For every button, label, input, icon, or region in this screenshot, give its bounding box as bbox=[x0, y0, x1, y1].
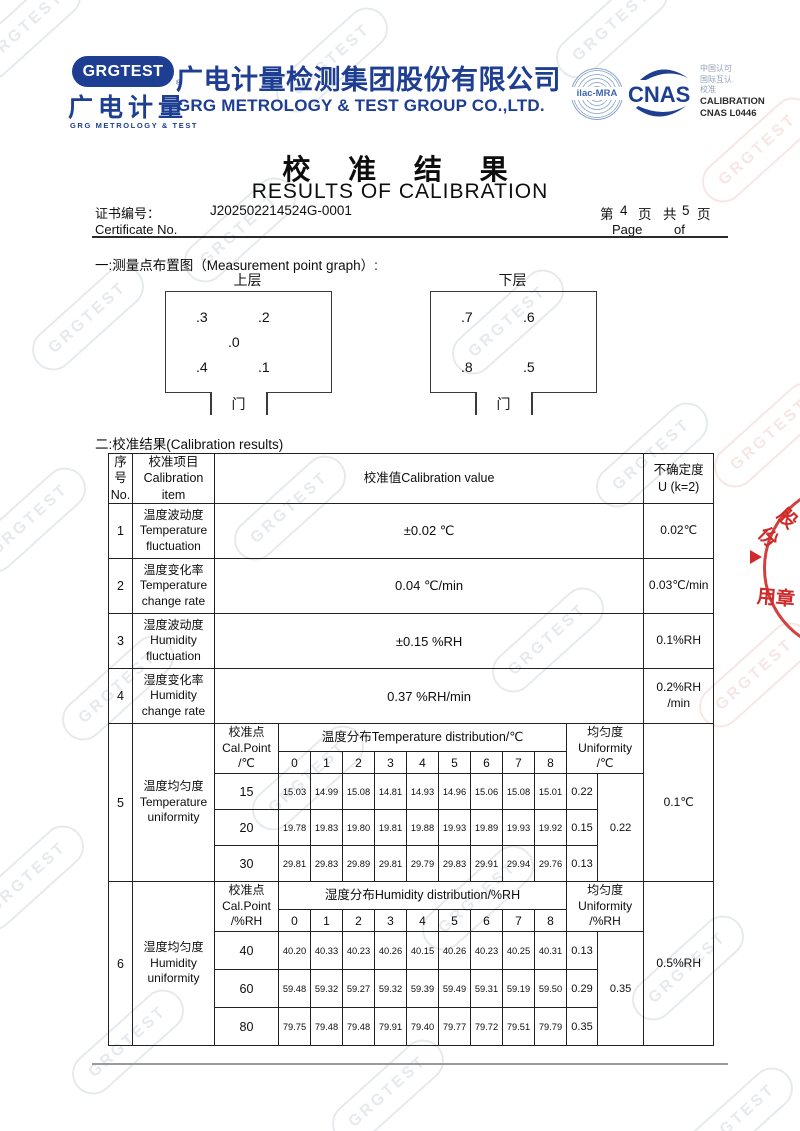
page-total: 5 bbox=[682, 203, 690, 218]
accred-line-cn: 中国认可 bbox=[700, 64, 765, 75]
cell-measurement: 29.83 bbox=[439, 846, 471, 882]
lower-layer-box: .7 .6 .8 .5 门 bbox=[430, 291, 597, 393]
col-header-no: 序 号 No. bbox=[109, 454, 133, 504]
cell-measurement: 19.89 bbox=[471, 810, 503, 846]
measurement-point: .6 bbox=[523, 309, 535, 325]
cell-item: 温度均匀度 Temperature uniformity bbox=[133, 724, 215, 882]
certificate-no-label-cn: 证书编号： bbox=[95, 203, 160, 222]
cell-measurement: 59.48 bbox=[279, 970, 311, 1008]
cell-distribution-label: 温度分布Temperature distribution/℃ bbox=[279, 724, 567, 752]
cell-calpoint-label: 校准点 Cal.Point /℃ bbox=[215, 724, 279, 774]
cell-value: 0.04 ℃/min bbox=[215, 559, 644, 614]
grgtest-watermark: GRGTEST bbox=[0, 459, 95, 581]
section2-heading: 二:校准结果(Calibration results) bbox=[95, 433, 283, 453]
cell-value: 0.37 %RH/min bbox=[215, 669, 644, 724]
cell-no: 4 bbox=[109, 669, 133, 724]
cell-measurement: 14.93 bbox=[407, 774, 439, 810]
cell-no: 3 bbox=[109, 614, 133, 669]
cell-measurement: 40.26 bbox=[439, 932, 471, 970]
cell-measurement: 40.15 bbox=[407, 932, 439, 970]
cell-uniformity: 0.13 bbox=[567, 846, 598, 882]
cell-measurement: 29.83 bbox=[311, 846, 343, 882]
cell-col-index: 5 bbox=[439, 752, 471, 774]
cell-measurement: 29.91 bbox=[471, 846, 503, 882]
cell-measurement: 59.50 bbox=[535, 970, 567, 1008]
cell-no: 1 bbox=[109, 504, 133, 559]
grgtest-logo-cn: 广电计量 bbox=[68, 88, 188, 124]
measurement-point: .2 bbox=[258, 309, 270, 325]
cell-col-index: 6 bbox=[471, 910, 503, 932]
cell-measurement: 40.20 bbox=[279, 932, 311, 970]
cell-measurement: 19.81 bbox=[375, 810, 407, 846]
cell-measurement: 59.31 bbox=[471, 970, 503, 1008]
cell-uniformity-label: 均匀度 Uniformity /%RH bbox=[567, 882, 644, 932]
cell-measurement: 79.48 bbox=[343, 1008, 375, 1046]
cell-measurement: 59.32 bbox=[375, 970, 407, 1008]
cell-measurement: 79.91 bbox=[375, 1008, 407, 1046]
cell-uniformity-overall: 0.22 bbox=[598, 774, 644, 882]
cell-measurement: 15.03 bbox=[279, 774, 311, 810]
cell-measurement: 19.78 bbox=[279, 810, 311, 846]
cell-measurement: 29.81 bbox=[375, 846, 407, 882]
cell-measurement: 79.77 bbox=[439, 1008, 471, 1046]
company-name-cn: 广电计量检测集团股份有限公司 bbox=[176, 58, 561, 97]
upper-layer-title: 上层 bbox=[165, 270, 330, 290]
table-row: 3 湿度波动度 Humidity fluctuation ±0.15 %RH 0… bbox=[109, 614, 714, 669]
cell-col-index: 2 bbox=[343, 910, 375, 932]
door-label: 门 bbox=[210, 394, 267, 414]
measurement-point: .7 bbox=[461, 309, 473, 325]
cell-uniformity: 0.15 bbox=[567, 810, 598, 846]
ilac-mra-label: ilac-MRA bbox=[568, 87, 626, 100]
table-row: 5 温度均匀度 Temperature uniformity 校准点 Cal.P… bbox=[109, 724, 714, 752]
ilac-mra-logo-icon: ilac-MRA bbox=[571, 68, 623, 120]
col-header-value: 校准值Calibration value bbox=[215, 454, 644, 504]
certificate-page: GRGTESTGRGTESTGRGTESTGRGTESTGRGTESTGRGTE… bbox=[0, 0, 800, 1131]
col-header-item: 校准项目 Calibration item bbox=[133, 454, 215, 504]
accred-line-cn: 校准 bbox=[700, 85, 765, 96]
table-row: 2 温度变化率 Temperature change rate 0.04 ℃/m… bbox=[109, 559, 714, 614]
table-row: 4 湿度变化率 Humidity change rate 0.37 %RH/mi… bbox=[109, 669, 714, 724]
cell-measurement: 40.23 bbox=[471, 932, 503, 970]
cell-measurement: 59.39 bbox=[407, 970, 439, 1008]
accred-cnas-code: CNAS L0446 bbox=[700, 108, 765, 120]
grgtest-watermark: GRGTEST bbox=[705, 374, 800, 496]
measurement-point: .0 bbox=[228, 334, 240, 350]
cell-measurement: 59.49 bbox=[439, 970, 471, 1008]
cell-value: ±0.15 %RH bbox=[215, 614, 644, 669]
cell-measurement: 15.06 bbox=[471, 774, 503, 810]
accred-calibration-label: CALIBRATION bbox=[700, 96, 765, 108]
cell-col-index: 7 bbox=[503, 910, 535, 932]
table-row: 6 湿度均匀度 Humidity uniformity 校准点 Cal.Poin… bbox=[109, 882, 714, 910]
cell-uniformity: 0.22 bbox=[567, 774, 598, 810]
measurement-point: .4 bbox=[196, 359, 208, 375]
cell-col-index: 8 bbox=[535, 752, 567, 774]
cell-calpoint-label: 校准点 Cal.Point /%RH bbox=[215, 882, 279, 932]
cell-col-index: 3 bbox=[375, 910, 407, 932]
page-word-3: 共 bbox=[663, 203, 677, 223]
cell-calpoint: 15 bbox=[215, 774, 279, 810]
company-name-en: GRG METROLOGY & TEST GROUP CO.,LTD. bbox=[177, 96, 545, 116]
cell-col-index: 8 bbox=[535, 910, 567, 932]
cell-measurement: 29.81 bbox=[279, 846, 311, 882]
cell-measurement: 15.01 bbox=[535, 774, 567, 810]
grgtest-watermark: GRGTEST bbox=[672, 1059, 800, 1131]
cell-col-index: 0 bbox=[279, 752, 311, 774]
page-word-4: 页 bbox=[697, 203, 711, 223]
cell-measurement: 40.25 bbox=[503, 932, 535, 970]
measurement-point: .8 bbox=[461, 359, 473, 375]
cell-measurement: 29.94 bbox=[503, 846, 535, 882]
lower-layer-title: 下层 bbox=[430, 270, 595, 290]
cell-measurement: 14.96 bbox=[439, 774, 471, 810]
grgtest-watermark: GRGTEST bbox=[23, 257, 152, 379]
cell-calpoint: 40 bbox=[215, 932, 279, 970]
cell-value: ±0.02 ℃ bbox=[215, 504, 644, 559]
cell-measurement: 19.93 bbox=[439, 810, 471, 846]
grgtest-logo-badge: GRGTEST bbox=[72, 56, 174, 87]
cell-measurement: 19.92 bbox=[535, 810, 567, 846]
cell-col-index: 3 bbox=[375, 752, 407, 774]
measurement-point: .3 bbox=[196, 309, 208, 325]
cell-uniformity: 0.35 bbox=[567, 1008, 598, 1046]
table-header-row: 序 号 No. 校准项目 Calibration item 校准值Calibra… bbox=[109, 454, 714, 504]
cell-measurement: 14.99 bbox=[311, 774, 343, 810]
measurement-point: .1 bbox=[258, 359, 270, 375]
cell-col-index: 4 bbox=[407, 752, 439, 774]
cell-measurement: 79.79 bbox=[535, 1008, 567, 1046]
cell-measurement: 15.08 bbox=[503, 774, 535, 810]
grgtest-watermark: GRGTEST bbox=[0, 817, 93, 939]
cell-calpoint: 30 bbox=[215, 846, 279, 882]
certificate-no-label-en: Certificate No. bbox=[95, 222, 177, 237]
cell-uncertainty: 0.02℃ bbox=[644, 504, 714, 559]
cell-item: 温度波动度 Temperature fluctuation bbox=[133, 504, 215, 559]
cell-uniformity-label: 均匀度 Uniformity /℃ bbox=[567, 724, 644, 774]
cell-uniformity: 0.13 bbox=[567, 932, 598, 970]
cell-col-index: 1 bbox=[311, 752, 343, 774]
cell-measurement: 79.72 bbox=[471, 1008, 503, 1046]
col-header-uncertainty: 不确定度 U (k=2) bbox=[644, 454, 714, 504]
cell-distribution-label: 湿度分布Humidity distribution/%RH bbox=[279, 882, 567, 910]
cell-col-index: 2 bbox=[343, 752, 375, 774]
cell-measurement: 15.08 bbox=[343, 774, 375, 810]
cell-measurement: 29.89 bbox=[343, 846, 375, 882]
cell-uniformity-overall: 0.35 bbox=[598, 932, 644, 1046]
cell-no: 6 bbox=[109, 882, 133, 1046]
cell-item: 湿度波动度 Humidity fluctuation bbox=[133, 614, 215, 669]
cell-measurement: 19.88 bbox=[407, 810, 439, 846]
red-stamp-text-bottom: 用章 bbox=[756, 581, 796, 611]
page-word-2: 页 bbox=[638, 203, 652, 223]
cell-item: 湿度均匀度 Humidity uniformity bbox=[133, 882, 215, 1046]
cell-col-index: 1 bbox=[311, 910, 343, 932]
cell-col-index: 6 bbox=[471, 752, 503, 774]
cell-measurement: 19.83 bbox=[311, 810, 343, 846]
cell-measurement: 40.33 bbox=[311, 932, 343, 970]
cell-measurement: 19.80 bbox=[343, 810, 375, 846]
cell-uncertainty: 0.03℃/min bbox=[644, 559, 714, 614]
cell-measurement: 40.23 bbox=[343, 932, 375, 970]
cell-measurement: 79.51 bbox=[503, 1008, 535, 1046]
page-label-en: Page bbox=[612, 222, 642, 237]
cell-measurement: 29.79 bbox=[407, 846, 439, 882]
door-label: 门 bbox=[475, 394, 532, 414]
cell-uncertainty: 0.2%RH /min bbox=[644, 669, 714, 724]
svg-text:CNAS: CNAS bbox=[628, 82, 690, 107]
cell-measurement: 14.81 bbox=[375, 774, 407, 810]
cell-measurement: 19.93 bbox=[503, 810, 535, 846]
results-table: 序 号 No. 校准项目 Calibration item 校准值Calibra… bbox=[108, 453, 714, 1046]
cell-calpoint: 80 bbox=[215, 1008, 279, 1046]
page-title-en: RESULTS OF CALIBRATION bbox=[0, 180, 800, 204]
cell-item: 湿度变化率 Humidity change rate bbox=[133, 669, 215, 724]
header-rule bbox=[92, 236, 728, 238]
cell-calpoint: 20 bbox=[215, 810, 279, 846]
upper-layer-box: .3 .2 .0 .4 .1 门 bbox=[165, 291, 332, 393]
cell-uncertainty: 0.1℃ bbox=[644, 724, 714, 882]
cell-measurement: 40.31 bbox=[535, 932, 567, 970]
cell-measurement: 79.75 bbox=[279, 1008, 311, 1046]
cell-measurement: 79.48 bbox=[311, 1008, 343, 1046]
page-word-1: 第 bbox=[600, 203, 614, 223]
cell-no: 2 bbox=[109, 559, 133, 614]
cell-measurement: 79.40 bbox=[407, 1008, 439, 1046]
page-number: 4 bbox=[620, 203, 628, 218]
measurement-point: .5 bbox=[523, 359, 535, 375]
footer-rule bbox=[92, 1063, 728, 1065]
cell-calpoint: 60 bbox=[215, 970, 279, 1008]
cell-measurement: 40.26 bbox=[375, 932, 407, 970]
accred-line-cn: 国际互认 bbox=[700, 75, 765, 86]
cell-measurement: 59.32 bbox=[311, 970, 343, 1008]
cell-measurement: 59.19 bbox=[503, 970, 535, 1008]
cnas-logo-icon: CNAS bbox=[626, 66, 698, 120]
of-label-en: of bbox=[674, 222, 685, 237]
cell-uniformity: 0.29 bbox=[567, 970, 598, 1008]
cell-col-index: 0 bbox=[279, 910, 311, 932]
grgtest-logo-subtitle: GRG METROLOGY & TEST bbox=[70, 121, 198, 130]
red-stamp-star-fragment bbox=[750, 550, 762, 564]
cell-no: 5 bbox=[109, 724, 133, 882]
cell-col-index: 5 bbox=[439, 910, 471, 932]
cell-uncertainty: 0.5%RH bbox=[644, 882, 714, 1046]
table-row: 1 温度波动度 Temperature fluctuation ±0.02 ℃ … bbox=[109, 504, 714, 559]
certificate-number: J202502214524G-0001 bbox=[210, 203, 352, 218]
cell-col-index: 7 bbox=[503, 752, 535, 774]
cell-measurement: 29.76 bbox=[535, 846, 567, 882]
cell-item: 温度变化率 Temperature change rate bbox=[133, 559, 215, 614]
accreditation-text-block: 中国认可 国际互认 校准 CALIBRATION CNAS L0446 bbox=[700, 64, 765, 120]
cell-measurement: 59.27 bbox=[343, 970, 375, 1008]
cell-uncertainty: 0.1%RH bbox=[644, 614, 714, 669]
cell-col-index: 4 bbox=[407, 910, 439, 932]
